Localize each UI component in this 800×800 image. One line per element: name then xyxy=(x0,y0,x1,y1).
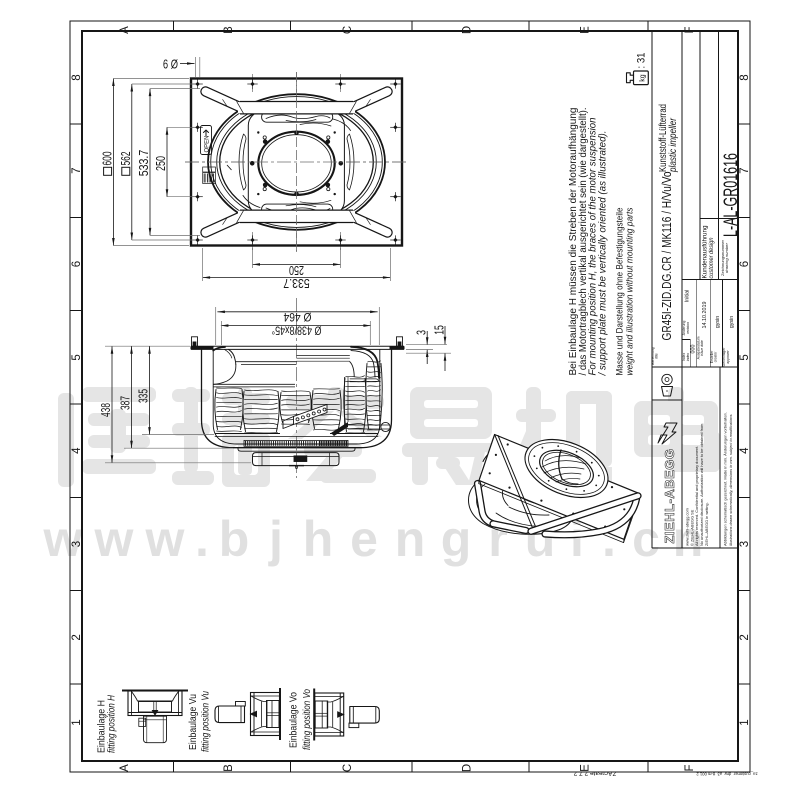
svg-text:3: 3 xyxy=(415,330,429,335)
svg-text:gysin: gysin xyxy=(715,316,721,329)
svg-text:F: F xyxy=(684,764,696,771)
svg-text:plastic impeller: plastic impeller xyxy=(667,118,679,173)
svg-text:GR45I-ZID.DG.CR / MK116 / H/Vu: GR45I-ZID.DG.CR / MK116 / H/Vu/Vo xyxy=(660,171,674,340)
svg-text:fitting position Vo: fitting position Vo xyxy=(302,689,313,750)
svg-text:e: e xyxy=(350,511,378,567)
svg-text:Ø 438/8x45°: Ø 438/8x45° xyxy=(271,323,321,337)
svg-text:1: 1 xyxy=(739,719,751,725)
svg-text:.: . xyxy=(195,511,209,567)
svg-text:fitting position Vu: fitting position Vu xyxy=(201,691,212,752)
svg-text:335: 335 xyxy=(137,389,151,403)
svg-text:D: D xyxy=(462,26,474,34)
svg-text:B: B xyxy=(223,764,235,772)
svg-text:Initial: Initial xyxy=(685,290,691,303)
svg-text:drawing number: drawing number xyxy=(725,242,729,273)
svg-text:weight and illustration withou: weight and illustration without mounting… xyxy=(624,207,635,375)
svg-text:c: c xyxy=(632,511,660,567)
svg-text:Einbaulage Vu: Einbaulage Vu xyxy=(188,694,199,750)
svg-text:j: j xyxy=(268,511,283,567)
svg-text:387: 387 xyxy=(119,396,133,410)
svg-text:6: 6 xyxy=(739,261,751,267)
svg-text:5: 5 xyxy=(71,354,83,360)
svg-text:A: A xyxy=(119,26,131,34)
svg-text:F: F xyxy=(684,26,696,33)
svg-text:D: D xyxy=(462,764,474,772)
svg-text:b: b xyxy=(219,511,250,567)
svg-text:C: C xyxy=(342,26,354,34)
svg-text:za_customer_drw_a3_tt-m 001 2: za_customer_drw_a3_tt-m 001 2 xyxy=(696,771,758,776)
svg-text:g: g xyxy=(441,511,472,567)
svg-text:15: 15 xyxy=(433,325,447,335)
svg-text:ZIEHL-ABEGG in writing.: ZIEHL-ABEGG in writing. xyxy=(704,502,709,546)
svg-text:562: 562 xyxy=(119,151,133,165)
svg-text:Abbildungen schematisch gezeic: Abbildungen schematisch gezeichnet. Maße… xyxy=(722,412,727,546)
svg-text:w: w xyxy=(145,511,185,567)
svg-text:C: C xyxy=(342,764,354,772)
svg-text:revision: revision xyxy=(686,322,690,334)
svg-text:533.7: 533.7 xyxy=(283,276,310,290)
svg-text:600: 600 xyxy=(101,151,115,165)
svg-text:Ø 9: Ø 9 xyxy=(163,56,178,70)
svg-text:14.10.2019: 14.10.2019 xyxy=(702,302,708,329)
svg-text:533.7: 533.7 xyxy=(137,150,151,177)
svg-text:gysin: gysin xyxy=(729,316,735,329)
svg-text:ZAcreate 2.7.2: ZAcreate 2.7.2 xyxy=(573,769,616,776)
svg-text:fitting position H: fitting position H xyxy=(107,695,118,753)
svg-text:5: 5 xyxy=(739,354,751,360)
svg-text:w: w xyxy=(43,511,83,567)
svg-text:2: 2 xyxy=(71,634,83,640)
svg-text:kg: kg xyxy=(639,74,646,82)
svg-text:ZIEHL-ABEGG: ZIEHL-ABEGG xyxy=(662,448,677,543)
svg-text:6: 6 xyxy=(71,261,83,267)
svg-text:1: 1 xyxy=(71,719,83,725)
svg-text:issue date: issue date xyxy=(700,340,704,356)
svg-text:index: index xyxy=(686,353,690,361)
svg-text:L-AL-GR01616: L-AL-GR01616 xyxy=(720,153,742,237)
svg-text:8: 8 xyxy=(71,74,83,80)
svg-text:250: 250 xyxy=(289,263,304,277)
svg-text:3: 3 xyxy=(71,541,83,547)
svg-text:title: title xyxy=(654,353,658,358)
svg-text:8: 8 xyxy=(739,74,751,80)
svg-text:B: B xyxy=(223,26,235,34)
svg-text:7: 7 xyxy=(71,167,83,173)
svg-text:250: 250 xyxy=(154,156,168,171)
svg-text:w: w xyxy=(94,511,134,567)
svg-text:approver: approver xyxy=(726,349,730,363)
svg-text:Einbaulage Vo: Einbaulage Vo xyxy=(289,692,300,748)
svg-text:E: E xyxy=(580,26,592,34)
svg-text:illustrations drawn schematica: illustrations drawn schematically, dimen… xyxy=(728,414,733,546)
svg-text:438: 438 xyxy=(99,403,113,417)
svg-text:4: 4 xyxy=(739,447,751,454)
svg-text:4: 4 xyxy=(71,447,83,454)
svg-text:: 31: : 31 xyxy=(636,53,648,69)
svg-text:h: h xyxy=(303,511,334,567)
svg-text:creator: creator xyxy=(714,351,718,362)
svg-text:/ support plate must be vertic: / support plate must be vertically orien… xyxy=(597,131,608,377)
svg-text:2: 2 xyxy=(739,634,751,640)
svg-text:n: n xyxy=(395,511,426,567)
svg-text:3: 3 xyxy=(739,541,751,547)
svg-text:OPEN: OPEN xyxy=(204,135,210,152)
svg-text:A: A xyxy=(119,764,131,772)
svg-text:customer design: customer design xyxy=(708,237,715,278)
svg-text:Ø 464: Ø 464 xyxy=(283,310,311,324)
